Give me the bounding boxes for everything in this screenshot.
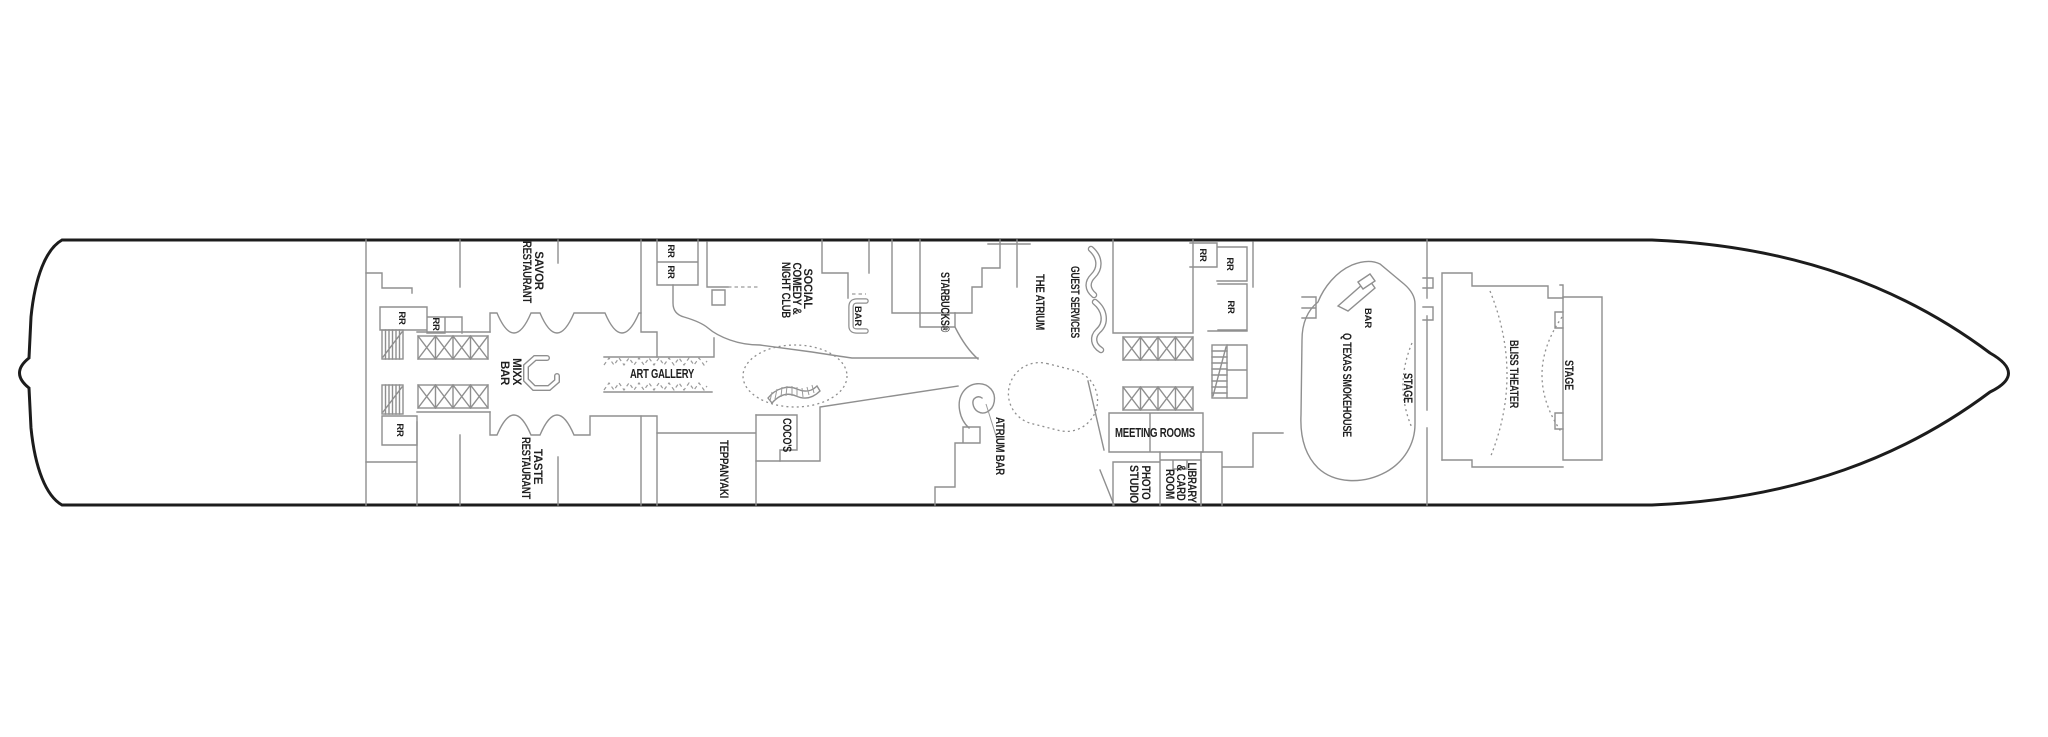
label-teppanyaki: TEPPANYAKI xyxy=(717,440,729,498)
label-rr: RR xyxy=(1224,257,1235,271)
label-cocos: COCO'S xyxy=(780,418,792,452)
label-mixx-bar: MIXX BAR xyxy=(498,358,522,388)
label-bliss-stage: STAGE xyxy=(1562,360,1574,391)
label-bliss-theater: BLISS THEATER xyxy=(1507,340,1519,409)
label-art-gallery: ART GALLERY xyxy=(630,367,695,381)
label-rr: RR xyxy=(430,317,441,331)
label-q-texas-bar: BAR xyxy=(1362,308,1373,328)
label-rr: RR xyxy=(394,423,405,437)
label-rr: RR xyxy=(1225,300,1236,314)
label-social-comedy-night-club: SOCIAL COMEDY & NIGHT CLUB xyxy=(779,262,813,318)
label-rr: RR xyxy=(665,265,676,279)
deck-plan: SAVOR RESTAURANT TASTE RESTAURANT MIXX B… xyxy=(0,0,2048,737)
label-q-texas-stage: STAGE xyxy=(1401,373,1413,404)
ship-hull-outline xyxy=(20,240,2009,505)
label-meeting-rooms: MEETING ROOMS xyxy=(1115,426,1195,440)
label-photo-studio: PHOTO STUDIO xyxy=(1127,465,1151,503)
label-q-texas-smokehouse: Q TEXAS SMOKEHOUSE xyxy=(1340,333,1352,437)
label-the-atrium: THE ATRIUM xyxy=(1033,274,1045,330)
label-rr: RR xyxy=(665,244,676,258)
label-starbucks: STARBUCKS® xyxy=(938,272,950,333)
deck-plan-svg: SAVOR RESTAURANT TASTE RESTAURANT MIXX B… xyxy=(0,0,2048,737)
label-rr: RR xyxy=(396,311,407,325)
label-rr: RR xyxy=(1197,248,1208,262)
label-guest-services: GUEST SERVICES xyxy=(1068,266,1080,338)
label-atrium-bar: ATRIUM BAR xyxy=(993,417,1005,476)
label-club-bar: BAR xyxy=(852,306,863,326)
